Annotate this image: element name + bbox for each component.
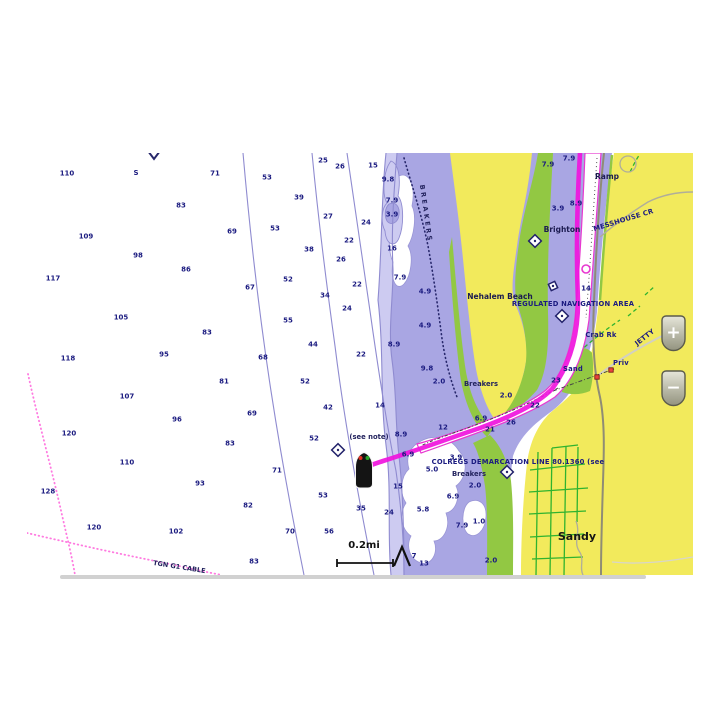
depth-sounding: 5.0 <box>426 465 439 473</box>
depth-sounding: 93 <box>195 479 205 487</box>
depth-sounding: 24 <box>342 304 352 312</box>
depth-sounding: 96 <box>172 415 182 423</box>
depth-sounding: 81 <box>219 377 229 385</box>
depth-sounding: 68 <box>258 353 268 361</box>
depth-sounding: 3.9 <box>386 210 399 218</box>
boat-icon <box>356 453 373 489</box>
depth-sounding: 53 <box>270 224 280 232</box>
nautical-chart[interactable]: 0.2mi 1107183109699886117105839511881107… <box>27 153 693 575</box>
depth-sounding: 26 <box>336 255 346 263</box>
depth-sounding: 3.9 <box>552 204 565 212</box>
depth-sounding: 2.0 <box>433 377 446 385</box>
minus-icon: − <box>666 378 680 398</box>
depth-sounding: 110 <box>120 458 135 466</box>
depth-sounding: 8.9 <box>388 340 401 348</box>
map-label: 7 <box>412 552 417 560</box>
red-beacon-icon <box>609 368 613 372</box>
depth-sounding: 24 <box>384 508 394 516</box>
port-light-icon <box>359 456 363 460</box>
map-label: Breakers <box>464 380 498 388</box>
depth-sounding: 8.9 <box>395 430 408 438</box>
depth-sounding: 6.9 <box>475 414 488 422</box>
map-label: (see note) <box>349 433 388 441</box>
depth-sounding: 14 <box>375 401 385 409</box>
depth-sounding: 21 <box>485 425 495 433</box>
depth-sounding: 109 <box>79 232 94 240</box>
depth-sounding: 44 <box>308 340 318 348</box>
chart-drop-shadow <box>60 575 646 579</box>
scale-label: 0.2mi <box>348 540 380 551</box>
map-label: Brighton <box>544 225 581 234</box>
depth-sounding: 70 <box>285 527 295 535</box>
depth-sounding: 69 <box>247 409 257 417</box>
map-label: Crab Rk <box>585 331 617 339</box>
depth-sounding: 7.9 <box>386 196 399 204</box>
depth-sounding: 22 <box>352 280 362 288</box>
depth-sounding: 117 <box>46 274 61 282</box>
depth-sounding: 9.8 <box>421 364 434 372</box>
map-label: Ramp <box>595 172 620 181</box>
map-label: REGULATED NAVIGATION AREA <box>512 300 635 308</box>
depth-sounding: 86 <box>181 265 191 273</box>
depth-sounding: 6.9 <box>402 450 415 458</box>
depth-sounding: 7.9 <box>394 273 407 281</box>
depth-sounding: 1.0 <box>473 517 486 525</box>
zoom-in-button[interactable]: + <box>662 316 685 351</box>
map-label: Breakers <box>452 470 486 478</box>
depth-sounding: 71 <box>210 169 220 177</box>
map-label: Priv <box>613 359 629 367</box>
depth-sounding: 34 <box>320 291 330 299</box>
depth-sounding: 7.9 <box>542 160 555 168</box>
depth-sounding: 4.9 <box>419 321 432 329</box>
depth-sounding: 98 <box>133 251 143 259</box>
depth-sounding: 118 <box>61 354 76 362</box>
depth-sounding: 52 <box>283 275 293 283</box>
depth-sounding: 71 <box>272 466 282 474</box>
depth-sounding: 22 <box>344 236 354 244</box>
depth-sounding: 53 <box>262 173 272 181</box>
depth-sounding: 69 <box>227 227 237 235</box>
depth-sounding: 7.9 <box>456 521 469 529</box>
depth-sounding: 35 <box>356 504 366 512</box>
depth-sounding: 39 <box>294 193 304 201</box>
depth-sounding: 83 <box>176 201 186 209</box>
starboard-light-icon <box>366 456 370 460</box>
map-label: S <box>133 169 138 177</box>
depth-sounding: 4.9 <box>419 287 432 295</box>
depth-sounding: 22 <box>356 350 366 358</box>
depth-sounding: 8.9 <box>570 199 583 207</box>
depth-sounding: 14 <box>581 284 591 292</box>
route-waypoint <box>582 265 590 273</box>
map-label: Sand <box>563 365 583 373</box>
depth-sounding: 2.0 <box>469 481 482 489</box>
depth-sounding: 2.0 <box>500 391 513 399</box>
depth-sounding: 12 <box>438 423 448 431</box>
depth-sounding: 15 <box>393 482 403 490</box>
depth-sounding: 5.8 <box>417 505 430 513</box>
depth-sounding: 52 <box>300 377 310 385</box>
depth-sounding: 42 <box>323 403 333 411</box>
depth-sounding: 110 <box>60 169 75 177</box>
depth-sounding: 9.8 <box>382 175 395 183</box>
depth-sounding: 26 <box>506 418 516 426</box>
depth-sounding: 83 <box>249 557 259 565</box>
depth-sounding: 55 <box>283 316 293 324</box>
depth-sounding: 105 <box>114 313 129 321</box>
depth-sounding: 67 <box>245 283 255 291</box>
depth-sounding: 102 <box>169 527 184 535</box>
depth-sounding: 27 <box>323 212 333 220</box>
depth-sounding: 120 <box>62 429 77 437</box>
depth-sounding: 53 <box>318 491 328 499</box>
depth-sounding: 82 <box>243 501 253 509</box>
map-label: COLREGS DEMARCATION LINE 80.1360 (see <box>432 458 605 466</box>
depth-sounding: 107 <box>120 392 135 400</box>
depth-sounding: 15 <box>368 161 378 169</box>
depth-sounding: 25 <box>318 156 328 164</box>
depth-sounding: 23 <box>551 376 561 384</box>
depth-sounding: 95 <box>159 350 169 358</box>
depth-sounding: 52 <box>309 434 319 442</box>
map-label: Sandy <box>558 530 596 543</box>
depth-sounding: 38 <box>304 245 314 253</box>
depth-sounding: 120 <box>87 523 102 531</box>
depth-sounding: 56 <box>324 527 334 535</box>
depth-sounding: 24 <box>361 218 371 226</box>
plus-icon: + <box>666 323 680 343</box>
depth-sounding: 26 <box>335 162 345 170</box>
red-beacon-icon <box>595 375 599 379</box>
depth-sounding: 7.9 <box>563 154 576 162</box>
depth-sounding: 6.9 <box>447 492 460 500</box>
depth-sounding: 16 <box>387 244 397 252</box>
depth-sounding: 2.0 <box>485 556 498 564</box>
depth-sounding: 13 <box>419 559 429 567</box>
depth-sounding: 83 <box>225 439 235 447</box>
depth-sounding: 83 <box>202 328 212 336</box>
depth-sounding: 22 <box>530 401 540 409</box>
zoom-out-button[interactable]: − <box>662 371 685 406</box>
depth-sounding: 128 <box>41 487 56 495</box>
